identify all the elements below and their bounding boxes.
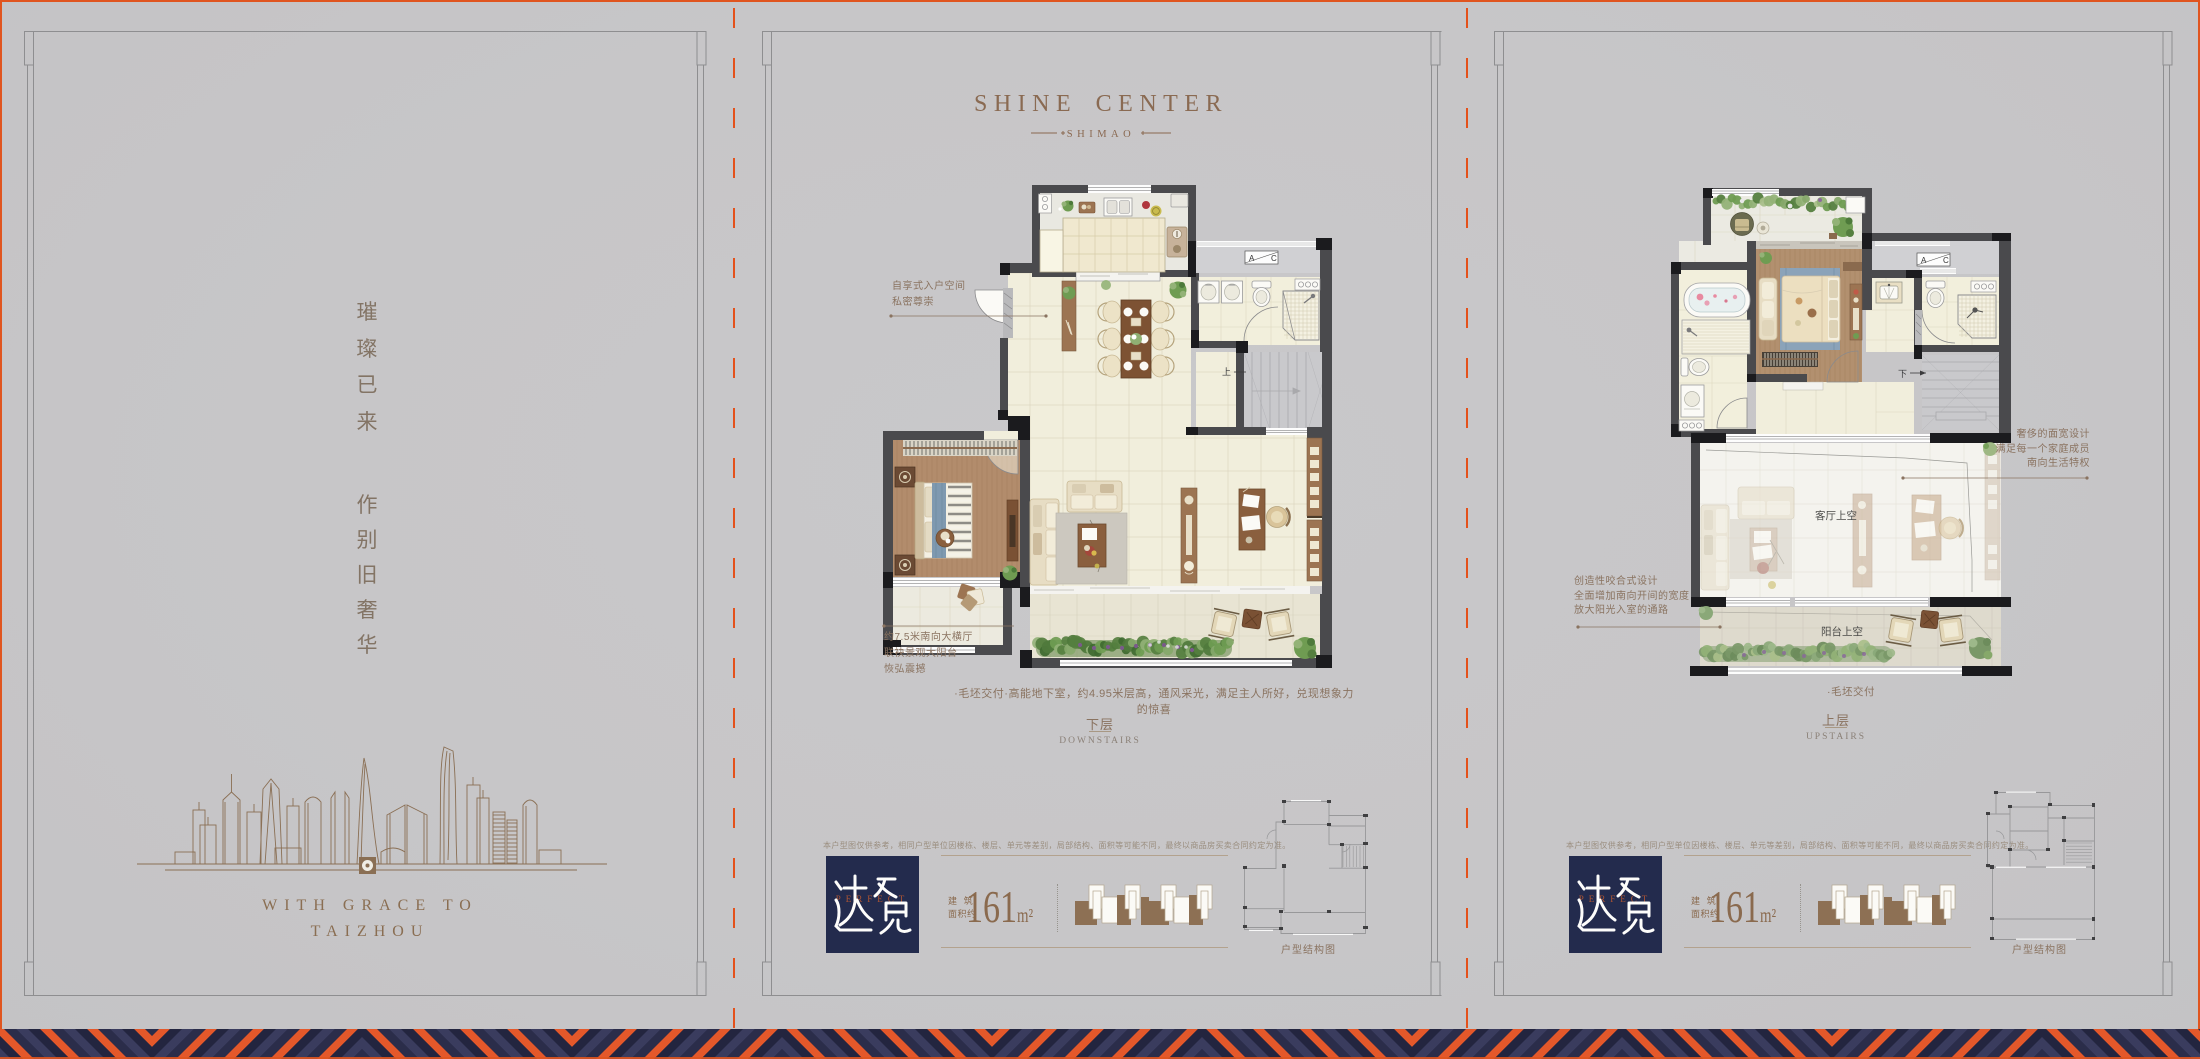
svg-text:A: A [1249,254,1255,263]
svg-text:阳台上空: 阳台上空 [1821,625,1863,638]
svg-text:下: 下 [1898,369,1907,379]
svg-text:A: A [1921,256,1927,265]
svg-text:SHIMAO: SHIMAO [1067,129,1135,140]
svg-text:C: C [1943,256,1949,265]
svg-text:上: 上 [1222,367,1231,377]
svg-text:C: C [1271,254,1277,263]
svg-text:客厅上空: 客厅上空 [1815,509,1857,522]
